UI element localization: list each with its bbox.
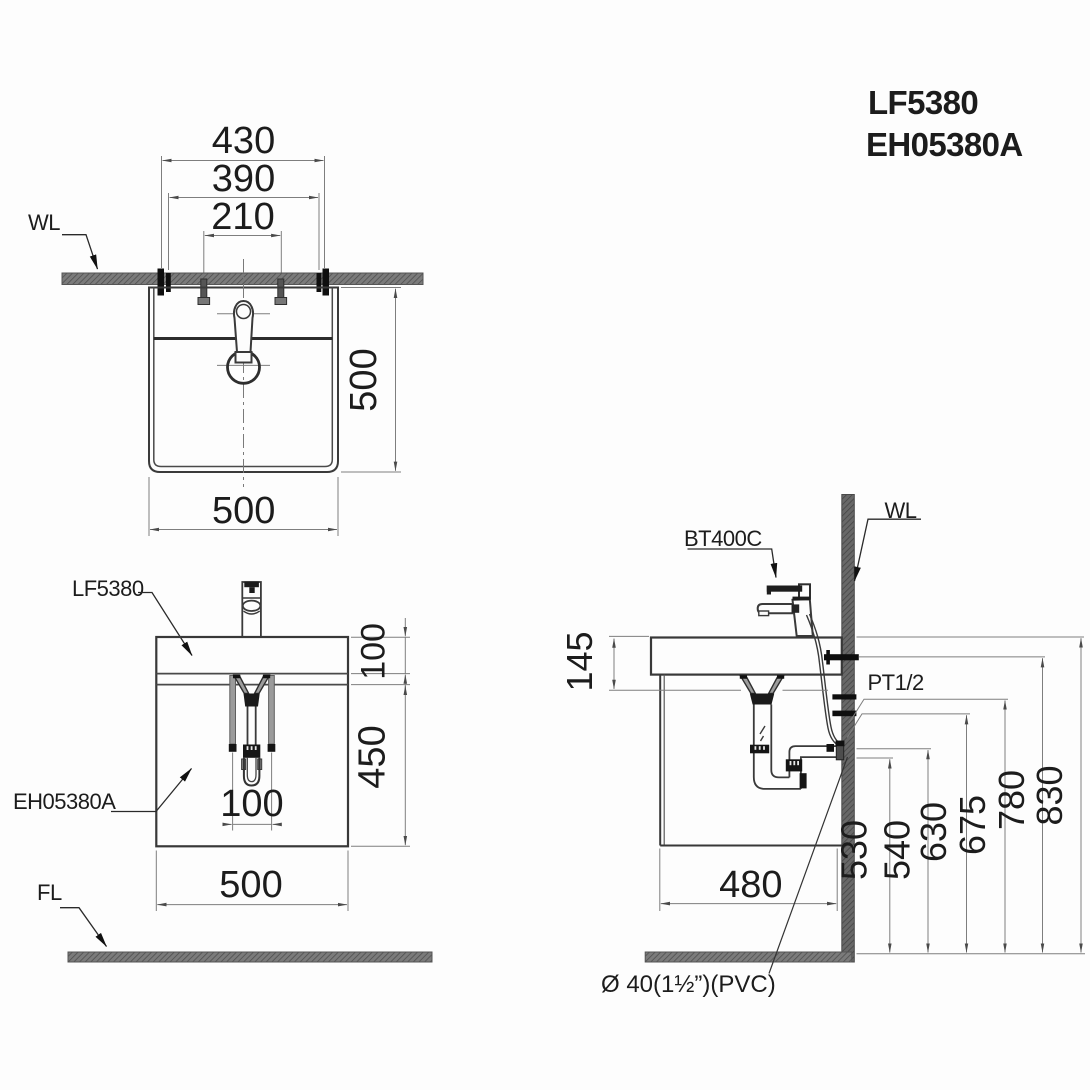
- svg-text:FL: FL: [37, 880, 62, 905]
- svg-text:630: 630: [913, 802, 954, 862]
- svg-text:LF5380: LF5380: [868, 84, 978, 121]
- svg-text:EH05380A: EH05380A: [866, 126, 1023, 163]
- svg-text:390: 390: [212, 158, 275, 200]
- svg-text:480: 480: [719, 864, 782, 906]
- svg-text:100: 100: [355, 623, 393, 680]
- svg-text:EH05380A: EH05380A: [13, 789, 116, 814]
- svg-text:500: 500: [212, 490, 275, 532]
- svg-text:830: 830: [1029, 765, 1070, 825]
- svg-text:145: 145: [559, 631, 600, 691]
- svg-text:WL: WL: [28, 210, 60, 235]
- svg-text:675: 675: [952, 795, 993, 855]
- svg-text:Ø 40(1½”)(PVC): Ø 40(1½”)(PVC): [601, 971, 776, 998]
- svg-text:500: 500: [343, 348, 385, 411]
- svg-text:LF5380: LF5380: [72, 576, 144, 601]
- svg-text:100: 100: [220, 783, 283, 825]
- svg-text:PT1/2: PT1/2: [868, 670, 924, 695]
- svg-text:210: 210: [211, 196, 274, 238]
- svg-text:BT400C: BT400C: [684, 526, 762, 551]
- svg-text:780: 780: [991, 770, 1032, 830]
- svg-text:540: 540: [877, 820, 918, 880]
- svg-text:530: 530: [833, 820, 874, 880]
- svg-text:500: 500: [219, 864, 282, 906]
- svg-text:450: 450: [352, 725, 394, 788]
- svg-text:430: 430: [212, 120, 275, 162]
